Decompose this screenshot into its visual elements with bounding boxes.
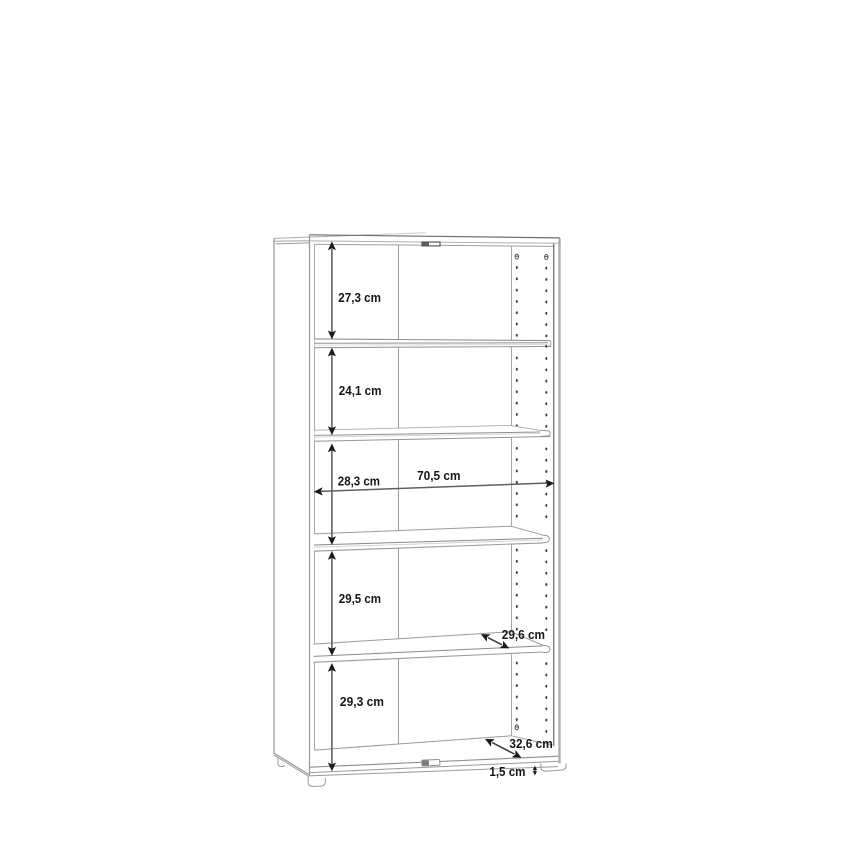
svg-text:27,3 cm: 27,3 cm: [338, 290, 381, 305]
svg-text:1,5 cm: 1,5 cm: [489, 764, 525, 779]
svg-text:32,6 cm: 32,6 cm: [509, 736, 552, 751]
svg-text:70,5 cm: 70,5 cm: [417, 468, 460, 483]
svg-text:29,6 cm: 29,6 cm: [502, 627, 545, 642]
svg-text:29,3 cm: 29,3 cm: [340, 694, 384, 709]
svg-text:28,3 cm: 28,3 cm: [338, 473, 380, 488]
svg-text:24,1 cm: 24,1 cm: [339, 383, 382, 398]
svg-text:29,5 cm: 29,5 cm: [339, 591, 381, 606]
